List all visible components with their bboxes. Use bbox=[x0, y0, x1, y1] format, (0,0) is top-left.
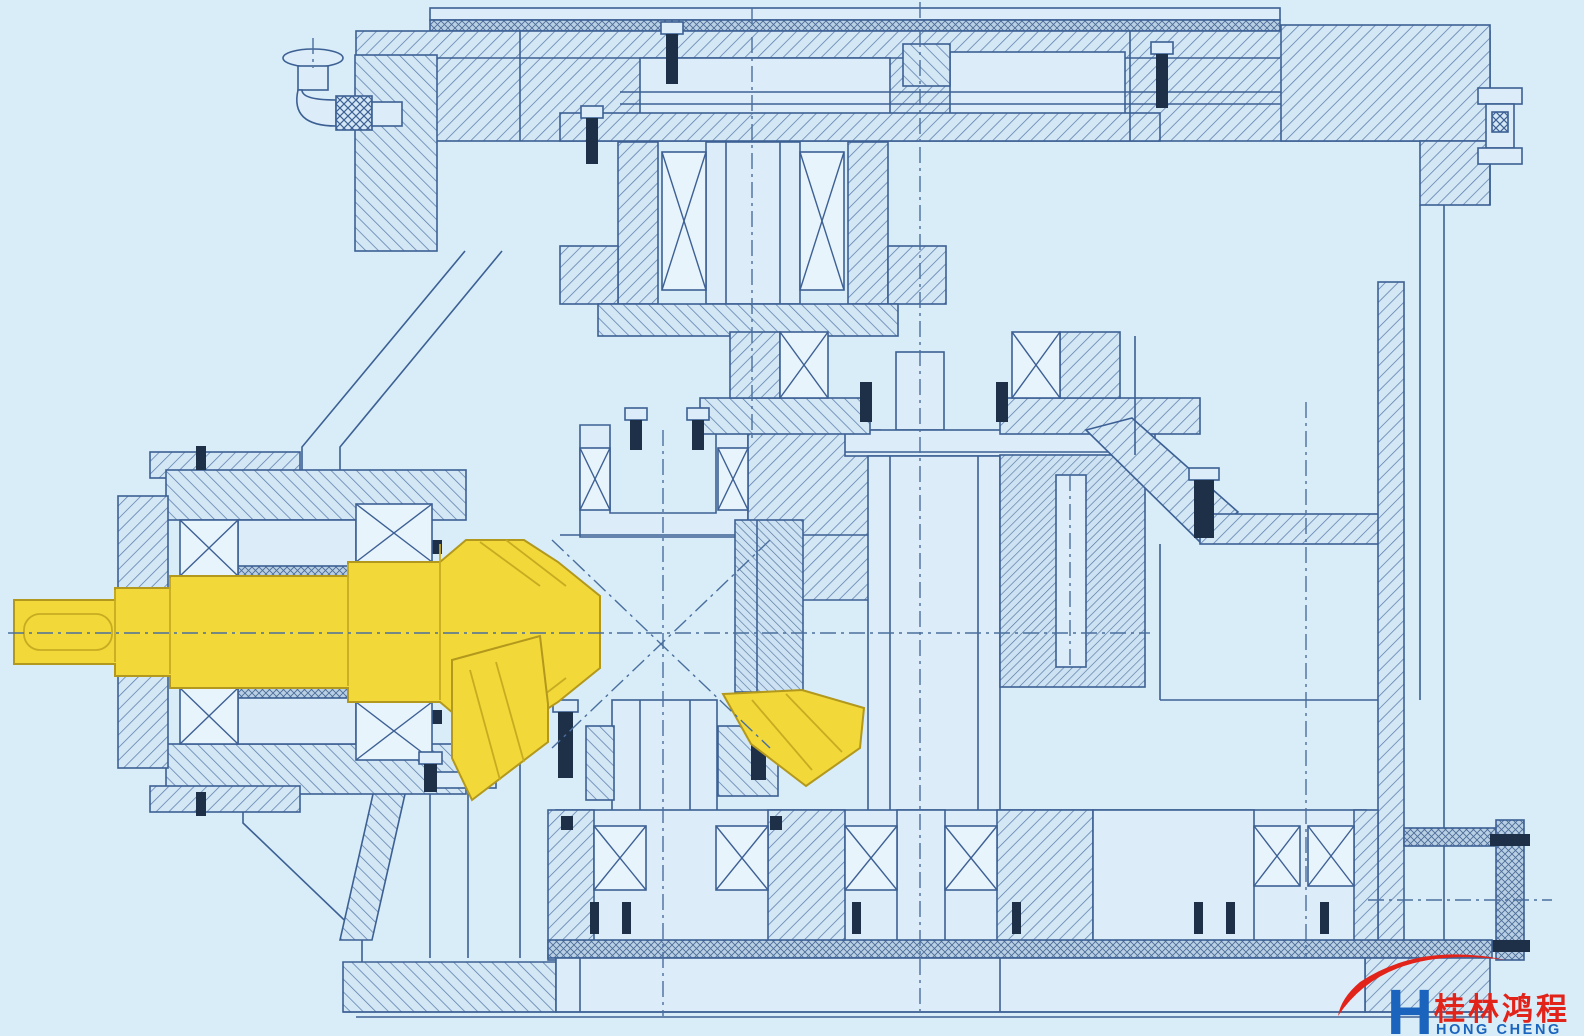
upper-bearing-tower bbox=[560, 142, 946, 336]
stud-icon bbox=[860, 382, 872, 422]
stud-icon bbox=[1194, 902, 1203, 934]
logo-english-text: HONG CHENG bbox=[1436, 1022, 1562, 1036]
base-plate bbox=[343, 958, 1490, 1017]
bearing-icon bbox=[1012, 332, 1060, 398]
bearing-icon bbox=[180, 520, 238, 576]
bearing-icon bbox=[1308, 826, 1354, 886]
bearing-icon bbox=[594, 826, 646, 890]
bearing-icon bbox=[716, 826, 768, 890]
stud-icon bbox=[196, 446, 206, 470]
stud-icon bbox=[1012, 902, 1021, 934]
stud-icon bbox=[852, 902, 861, 934]
stud-icon bbox=[1226, 902, 1235, 934]
bearing-icon bbox=[945, 826, 997, 890]
bearing-icon bbox=[580, 448, 610, 510]
engineering-drawing: H 桂林鸿程 HONG CHENG bbox=[0, 0, 1584, 1036]
screenshot: H 桂林鸿程 HONG CHENG bbox=[0, 0, 1584, 1036]
bearing-icon bbox=[662, 152, 706, 290]
stud-icon bbox=[590, 902, 599, 934]
stud-icon bbox=[1320, 902, 1329, 934]
stud-icon bbox=[622, 902, 631, 934]
bearing-icon bbox=[845, 826, 897, 890]
bearing-icon bbox=[1254, 826, 1300, 886]
stud-icon bbox=[196, 792, 206, 816]
gear-wheel-left bbox=[735, 520, 803, 692]
stud-icon bbox=[770, 816, 782, 830]
logo-monogram: H bbox=[1387, 976, 1433, 1036]
bearing-icon bbox=[356, 504, 432, 562]
stud-icon bbox=[561, 816, 573, 830]
stud-icon bbox=[996, 382, 1008, 422]
bearing-icon bbox=[718, 448, 748, 510]
bearing-icon bbox=[780, 332, 828, 398]
bearing-icon bbox=[180, 688, 238, 744]
bearing-icon bbox=[800, 152, 844, 290]
